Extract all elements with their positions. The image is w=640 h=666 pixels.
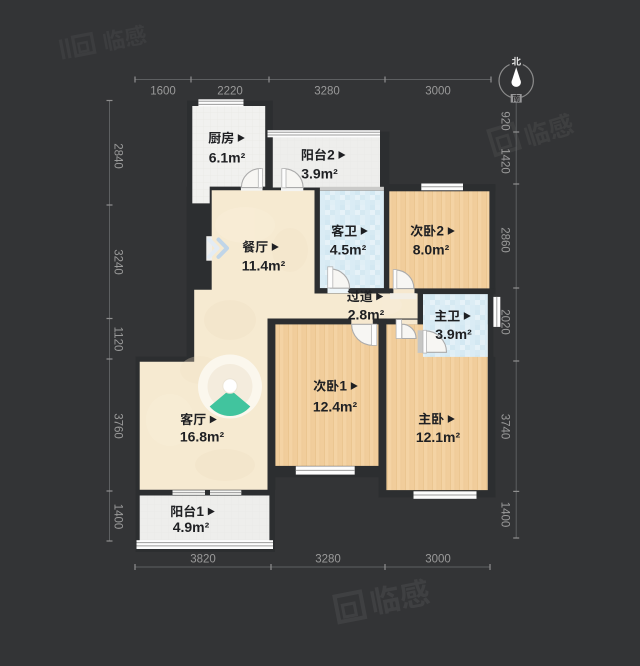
- svg-text:3240: 3240: [112, 249, 124, 275]
- svg-text:920: 920: [499, 111, 511, 130]
- svg-text:1: 1: [196, 504, 204, 519]
- svg-text:8.0m²: 8.0m²: [413, 242, 450, 258]
- svg-text:3000: 3000: [425, 86, 451, 98]
- svg-text:3740: 3740: [499, 414, 511, 440]
- svg-text:2: 2: [436, 224, 444, 239]
- svg-text:1400: 1400: [499, 502, 511, 528]
- svg-text:16.8m²: 16.8m²: [180, 429, 225, 445]
- svg-text:12.1m²: 12.1m²: [416, 429, 461, 445]
- svg-text:4.5m²: 4.5m²: [330, 242, 367, 258]
- svg-text:3760: 3760: [112, 413, 124, 439]
- svg-text:4.9m²: 4.9m²: [173, 519, 210, 535]
- svg-text:3.9m²: 3.9m²: [435, 326, 472, 342]
- svg-text:1: 1: [339, 379, 347, 394]
- svg-text:1120: 1120: [112, 327, 124, 352]
- svg-text:3280: 3280: [314, 86, 340, 98]
- svg-text:3.9m²: 3.9m²: [301, 165, 338, 181]
- svg-text:3820: 3820: [190, 554, 216, 566]
- svg-text:2220: 2220: [217, 86, 243, 98]
- svg-text:12.4m²: 12.4m²: [313, 399, 358, 415]
- svg-text:6.1m²: 6.1m²: [209, 150, 246, 166]
- svg-text:1400: 1400: [112, 504, 124, 530]
- svg-text:3000: 3000: [425, 554, 451, 566]
- svg-text:2840: 2840: [112, 143, 124, 169]
- svg-text:11.4m²: 11.4m²: [242, 258, 286, 274]
- svg-text:3280: 3280: [315, 554, 341, 566]
- svg-text:2.8m²: 2.8m²: [348, 307, 385, 323]
- svg-text:2020: 2020: [499, 309, 511, 335]
- svg-text:2860: 2860: [499, 227, 511, 253]
- svg-text:1420: 1420: [499, 148, 511, 174]
- svg-text:2: 2: [327, 148, 335, 163]
- svg-text:1600: 1600: [150, 86, 176, 98]
